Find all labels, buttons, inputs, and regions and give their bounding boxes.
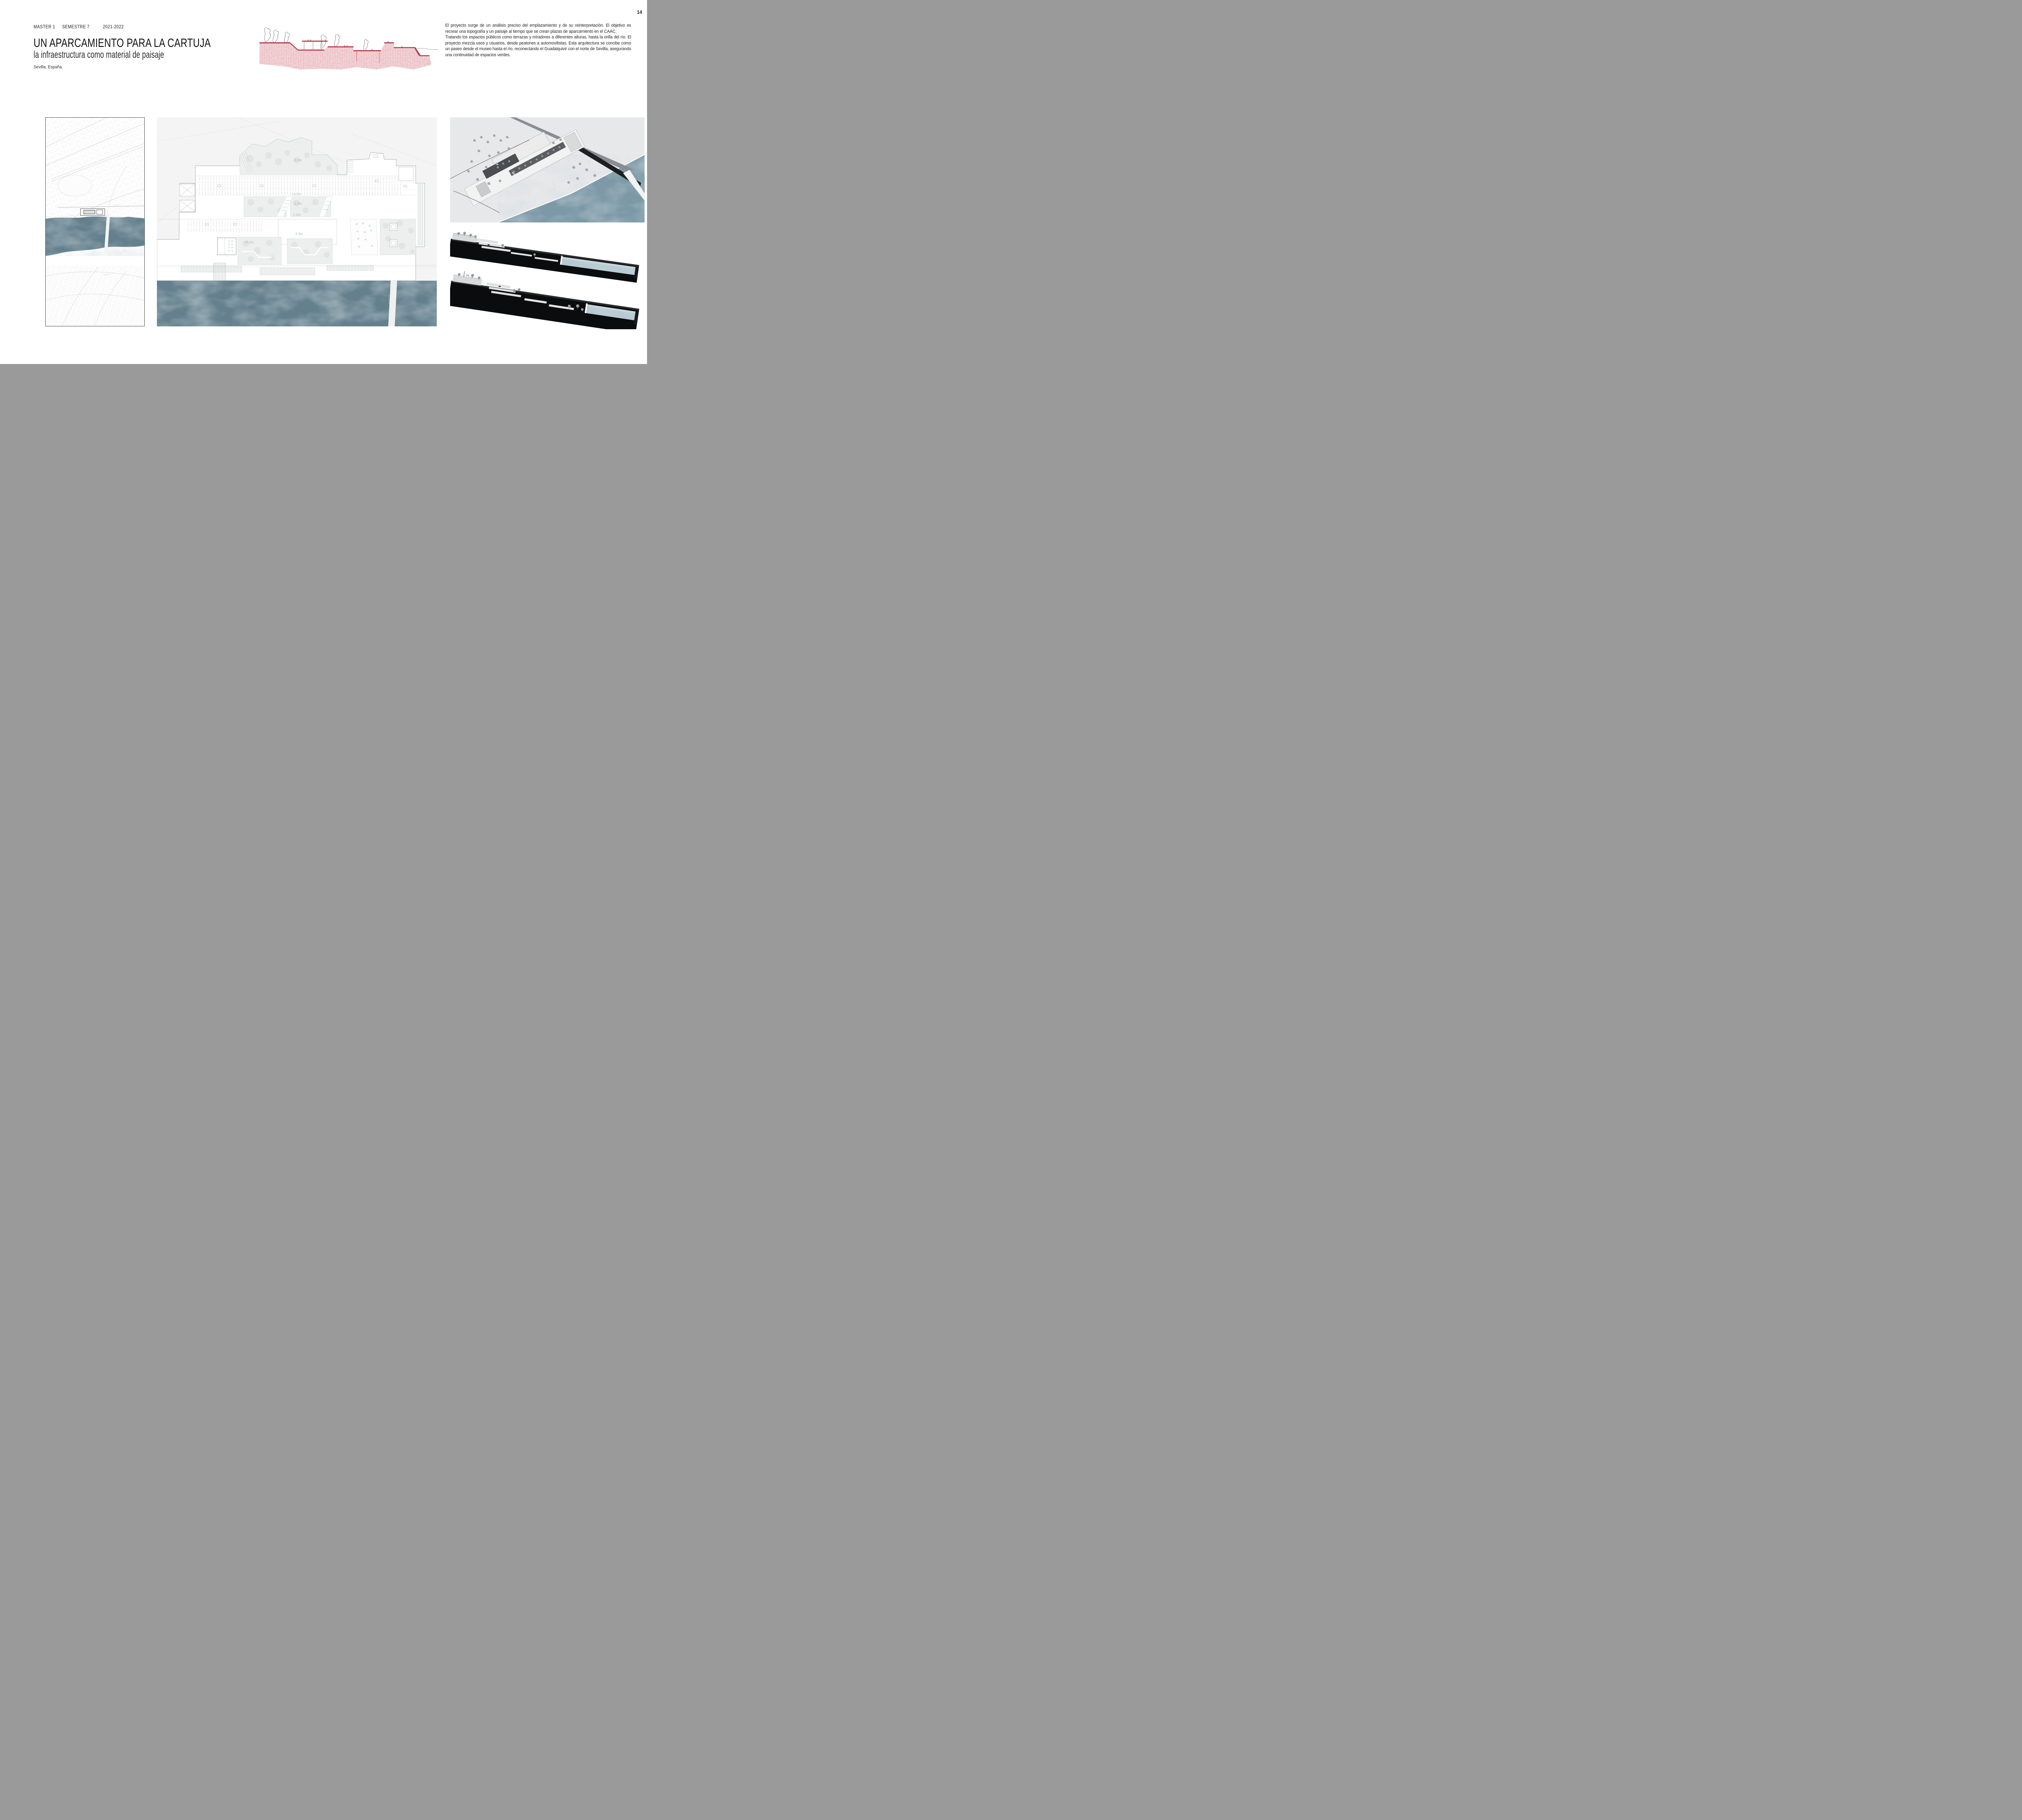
header-course: MASTER 1 bbox=[34, 25, 55, 30]
sketch-ground-line bbox=[415, 48, 438, 50]
map-riverbank bbox=[46, 257, 144, 265]
sections-drawing bbox=[450, 225, 645, 329]
plan-level-label: -2.0m bbox=[294, 201, 302, 205]
plan-parking-upper bbox=[195, 176, 416, 195]
page-number: 14 bbox=[637, 10, 642, 15]
header-meta: MASTER 1 SEMESTRE 7 2021-2022 bbox=[34, 25, 124, 30]
axon-drawing bbox=[450, 117, 645, 222]
header-year: 2021-2022 bbox=[103, 25, 124, 30]
page-title: UN APARCAMIENTO PARA LA CARTUJA bbox=[34, 36, 211, 50]
project-description: El proyecto surge de un análisis preciso… bbox=[445, 23, 631, 58]
plan-pavilion bbox=[218, 238, 236, 255]
portfolio-page: MASTER 1 SEMESTRE 7 2021-2022 UN APARCAM… bbox=[0, 0, 647, 364]
project-location: Sevilla, España. bbox=[34, 65, 63, 70]
figure-sectional-perspectives bbox=[450, 225, 645, 329]
plan-bridge-label: PUENTE bbox=[388, 294, 390, 304]
plan-level-label: -0.5m bbox=[295, 232, 303, 236]
figure-red-section-sketch bbox=[260, 24, 438, 71]
map-lower-blocks bbox=[46, 266, 144, 326]
figure-site-map: PASEO CALLE TORNEO bbox=[45, 117, 145, 326]
plan-level-label: -2.0m bbox=[294, 158, 302, 162]
plan-river bbox=[157, 280, 437, 326]
site-map-drawing bbox=[46, 118, 144, 326]
sketch-hatch-mass bbox=[260, 40, 438, 71]
floor-plan-drawing bbox=[157, 117, 437, 326]
page-subtitle: la infraestructura como material de pais… bbox=[34, 49, 164, 61]
plan-cafe-terrace bbox=[350, 219, 378, 255]
header-semester: SEMESTRE 7 bbox=[62, 25, 90, 30]
figure-floor-plan: -2.0m +1.0m -2.0m -1.0m -0.5m +0.0m PUEN… bbox=[157, 117, 437, 326]
figure-axonometric-view bbox=[450, 117, 645, 222]
plan-level-label: +1.0m bbox=[292, 192, 301, 196]
plan-garden-right bbox=[380, 219, 416, 255]
description-paragraph-2: Tratando los espacios públicos como terr… bbox=[445, 34, 631, 58]
map-upper-blocks bbox=[46, 118, 144, 220]
red-sketch-drawing bbox=[260, 24, 438, 71]
plan-level-label: +0.0m bbox=[245, 240, 254, 244]
plan-level-label: -1.0m bbox=[292, 213, 301, 217]
description-paragraph-1: El proyecto surge de un análisis preciso… bbox=[445, 23, 631, 34]
map-river bbox=[46, 215, 144, 256]
section-strip-1 bbox=[450, 230, 640, 283]
map-street-label-calle: CALLE bbox=[114, 204, 119, 206]
